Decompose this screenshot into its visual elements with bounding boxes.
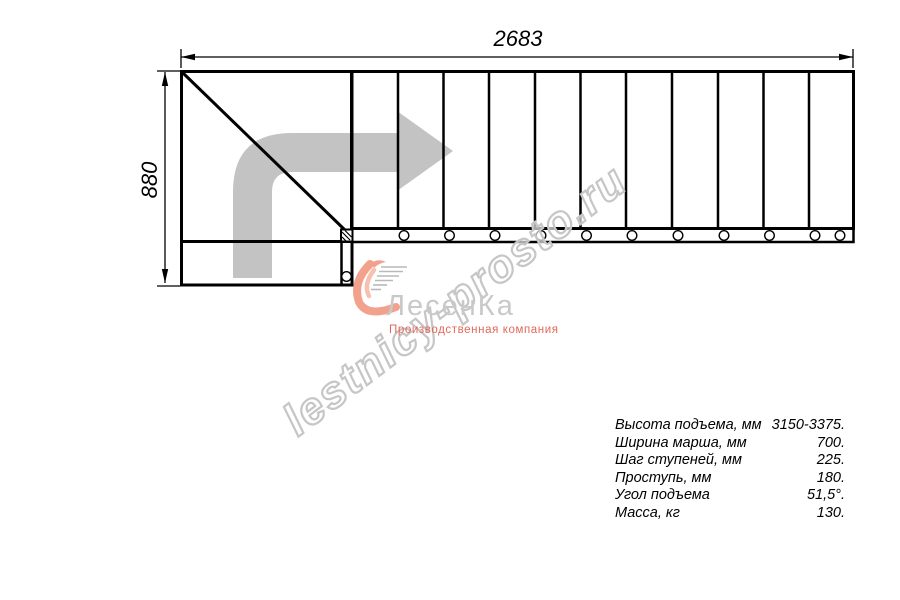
dimension-width-label: 2683 [478, 26, 558, 52]
spec-value: 180. [753, 470, 845, 488]
dim-arrow-down-icon [162, 269, 168, 283]
stair-outline [182, 72, 854, 286]
spec-label: Шаг ступеней, мм [615, 452, 753, 470]
spec-label: Ширина марша, мм [615, 435, 753, 453]
spec-table: Высота подъема, мм 3150-3375. Ширина мар… [615, 417, 845, 522]
spec-label: Проступь, мм [615, 470, 753, 488]
spec-row: Ширина марша, мм 700. [615, 435, 845, 453]
dimension-height-label: 880 [135, 155, 165, 205]
spec-label: Высота подъема, мм [615, 417, 762, 435]
spec-value: 3150-3375. [762, 417, 845, 435]
spec-row: Угол подъема 51,5°. [615, 487, 845, 505]
spec-value: 51,5°. [753, 487, 845, 505]
spec-label: Масса, кг [615, 505, 753, 523]
tread-lines [398, 72, 809, 229]
direction-arrow-icon [233, 111, 453, 278]
baluster-circles [342, 231, 845, 282]
dim-arrow-left-icon [181, 54, 195, 60]
logo-company-name: ЛесенКа [386, 290, 515, 323]
dim-arrow-up-icon [162, 72, 168, 86]
dim-arrow-right-icon [839, 54, 853, 60]
spec-label: Угол подъема [615, 487, 753, 505]
stair-drawing-page: { "drawing": { "title": "stair-plan-top-… [0, 0, 900, 600]
corner-post-hatch [341, 230, 353, 242]
stringer-band [352, 229, 854, 243]
spec-value: 700. [753, 435, 845, 453]
logo-subtitle: Производственная компания [389, 324, 559, 336]
spec-row: Шаг ступеней, мм 225. [615, 452, 845, 470]
spec-value: 130. [753, 505, 845, 523]
spec-row: Масса, кг 130. [615, 505, 845, 523]
spec-row: Высота подъема, мм 3150-3375. [615, 417, 845, 435]
spec-row: Проступь, мм 180. [615, 470, 845, 488]
spec-value: 225. [753, 452, 845, 470]
